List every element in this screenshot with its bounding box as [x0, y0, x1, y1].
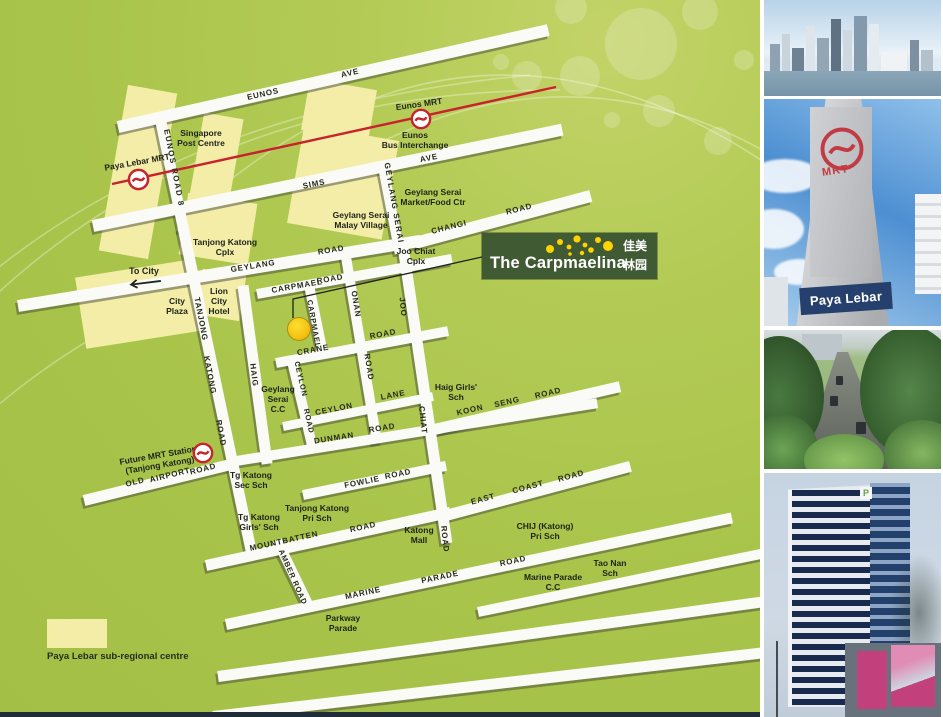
poi-joo-chiat-cplx: Joo ChiatCplx: [397, 246, 436, 266]
carpmaelina-chinese-name: 佳美 林园: [620, 237, 650, 274]
to-city-indicator: To City: [126, 266, 162, 294]
photo-office-tower: P: [764, 473, 941, 717]
poi-lion-city-hotel: LionCityHotel: [208, 286, 229, 316]
poi-marine-parade-c-c: Marine ParadeC.C: [524, 572, 582, 592]
future-mrt-station-icon: [192, 442, 214, 469]
street-lamp-pole: [776, 641, 778, 717]
poi-geylang-serai-c-c: GeylangSeraiC.C: [261, 384, 295, 414]
photo-paya-lebar-mrt-sign: MRT Paya Lebar: [764, 99, 941, 326]
poi-parkway-parade: ParkwayParade: [326, 613, 361, 633]
poi-tanjong-katong-pri-sch: Tanjong KatongPri Sch: [285, 503, 349, 523]
carpmaelina-title: The Carpmaelina: [490, 254, 626, 273]
paya-lebar-mrt-icon: [127, 168, 150, 196]
road-label-joo: JOO: [398, 297, 409, 317]
poi-chij-katong-pri-sch: CHIJ (Katong)Pri Sch: [517, 521, 574, 541]
photo-tree-lined-road: [764, 330, 941, 469]
billboard-1: [857, 651, 887, 709]
carpmaelina-chinese-line1: 佳美: [620, 237, 650, 256]
sea-water: [764, 71, 941, 96]
carpmaelina-location-marker: [287, 317, 311, 341]
poi-city-plaza: CityPlaza: [166, 296, 188, 316]
eunos-mrt-icon: [410, 108, 432, 135]
billboard-2: [891, 645, 935, 707]
page-edge-strip: [0, 712, 760, 717]
background-building: [915, 194, 941, 294]
location-map: To City EUNOSAVESIMSAVEGEYLANGROADCHANGI…: [0, 0, 760, 717]
carpmaelina-chinese-line2: 林园: [620, 256, 650, 275]
photo-city-skyline: [764, 0, 941, 96]
poi-tg-katong-sec-sch: Tg KatongSec Sch: [230, 470, 272, 490]
poi-singapore-post-centre: SingaporePost Centre: [177, 128, 225, 148]
tower-logo: P: [860, 487, 872, 499]
to-city-arrow-icon: [125, 275, 162, 291]
poi-haig-girls-sch: Haig Girls'Sch: [435, 382, 477, 402]
background-building-left: [764, 277, 788, 326]
mrt-line-and-callout-connector: [0, 0, 760, 717]
photo-column: MRT Paya Lebar P: [760, 0, 943, 717]
carpmaelina-callout: The Carpmaelina 佳美 林园: [482, 233, 657, 279]
poi-tao-nan-sch: Tao NanSch: [594, 558, 627, 578]
poi-tg-katong-girls-sch: Tg KatongGirls' Sch: [238, 512, 280, 532]
poi-geylang-serai-malay-village: Geylang SeraiMalay Village: [333, 210, 390, 230]
poi-geylang-serai-market-food-ctr: Geylang SeraiMarket/Food Ctr: [400, 187, 465, 207]
map-brochure-page: To City EUNOSAVESIMSAVEGEYLANGROADCHANGI…: [0, 0, 943, 717]
poi-katong-mall: KatongMall: [404, 525, 433, 545]
poi-tanjong-katong-cplx: Tanjong KatongCplx: [193, 237, 257, 257]
